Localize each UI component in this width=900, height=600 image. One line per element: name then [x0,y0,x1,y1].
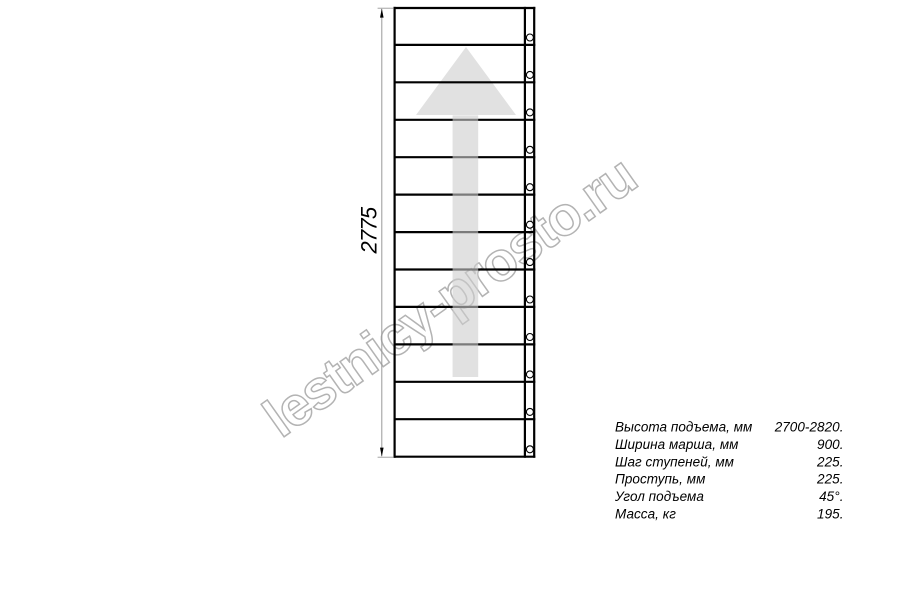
svg-text:900.: 900. [817,437,843,452]
svg-text:Шаг ступеней, мм: Шаг ступеней, мм [615,454,734,469]
svg-text:Высота подъема, мм: Высота подъема, мм [615,420,752,435]
svg-text:2700-2820.: 2700-2820. [774,420,844,435]
svg-text:225.: 225. [816,472,843,487]
svg-text:2775: 2775 [356,206,381,254]
svg-text:Ширина марша, мм: Ширина марша, мм [615,437,738,452]
svg-text:45°.: 45°. [819,489,843,504]
svg-text:Угол подъема: Угол подъема [614,489,704,504]
svg-text:225.: 225. [816,454,843,469]
svg-text:195.: 195. [817,506,843,521]
svg-text:Проступь, мм: Проступь, мм [615,472,705,487]
svg-text:lestnicy-prosto.ru: lestnicy-prosto.ru [252,143,648,448]
svg-text:Масса, кг: Масса, кг [615,506,676,521]
